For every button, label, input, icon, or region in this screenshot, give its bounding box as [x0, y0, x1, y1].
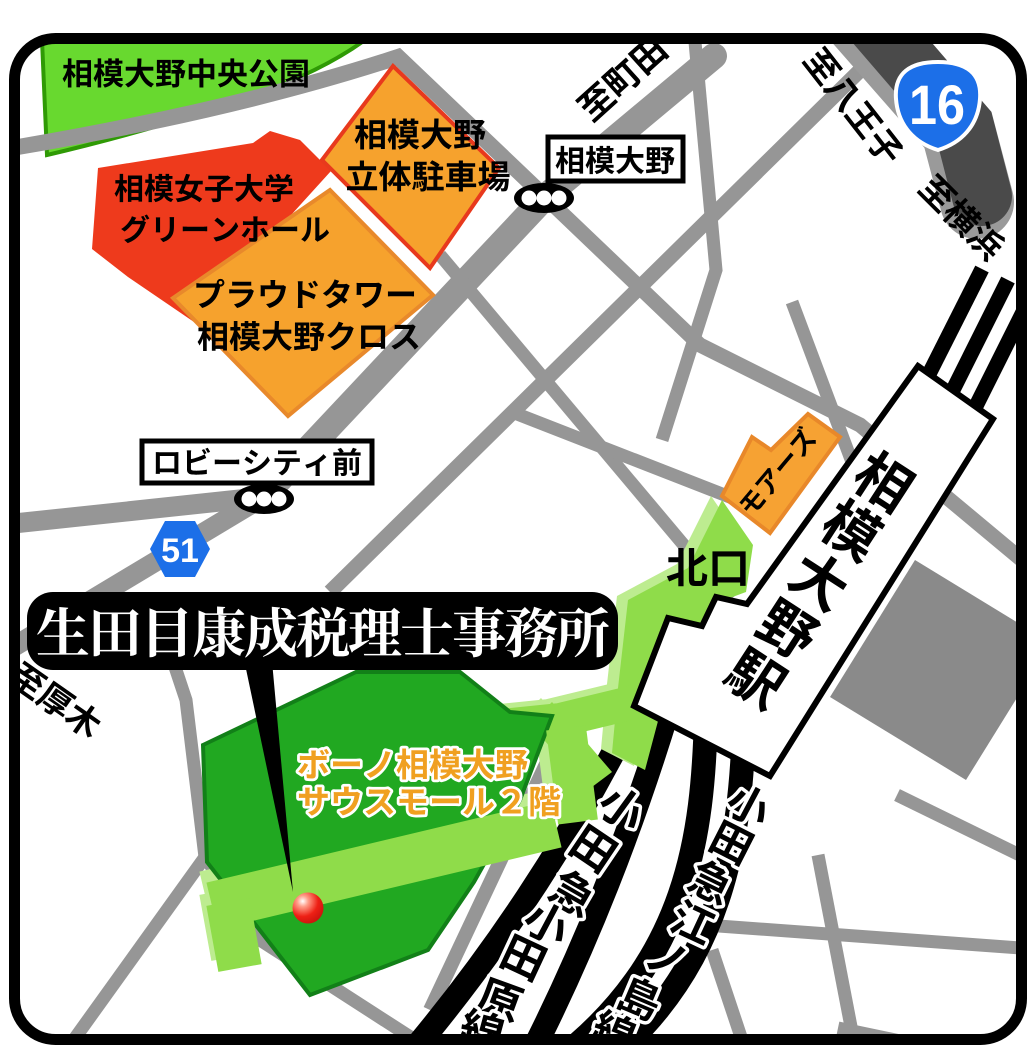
svg-text:51: 51	[161, 532, 199, 570]
svg-text:16: 16	[909, 73, 965, 136]
